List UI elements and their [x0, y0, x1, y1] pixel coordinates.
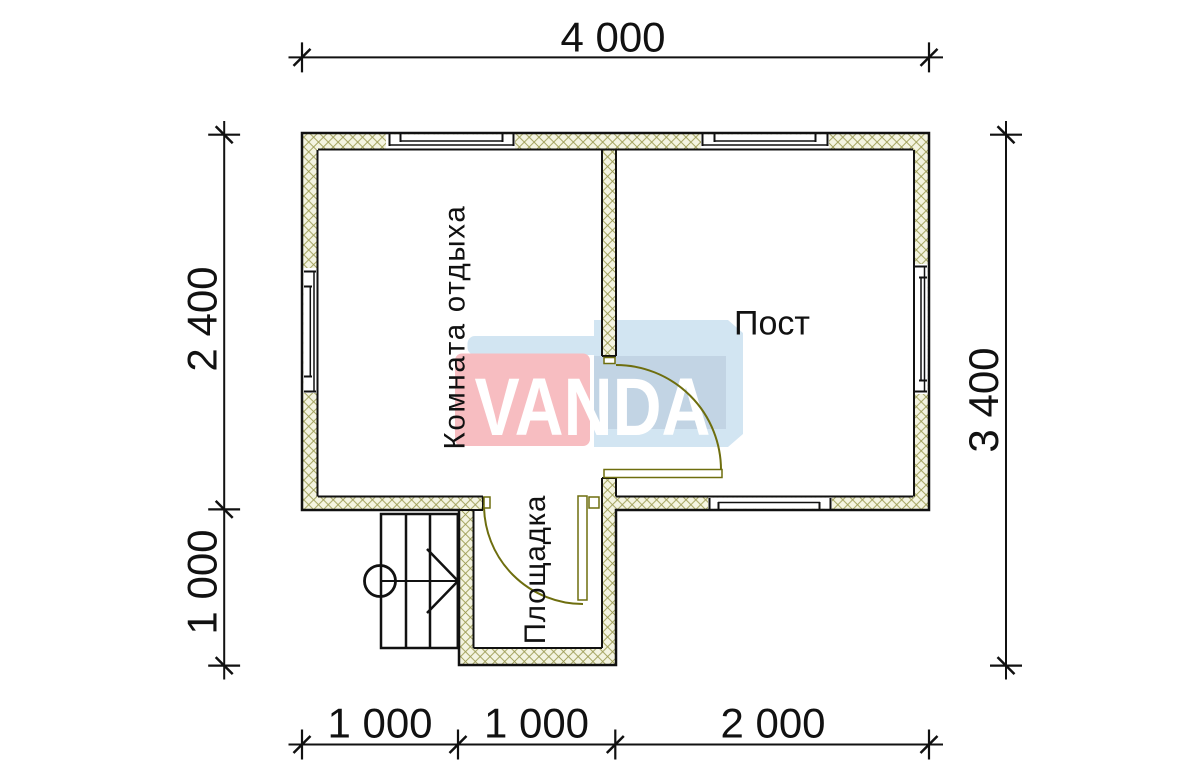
svg-text:1 000: 1 000 [178, 529, 225, 634]
svg-text:2 400: 2 400 [178, 266, 225, 371]
svg-text:1 000: 1 000 [327, 700, 432, 747]
svg-text:4 000: 4 000 [560, 14, 665, 61]
svg-text:2 000: 2 000 [720, 700, 825, 747]
svg-text:Площадка: Площадка [519, 495, 552, 644]
svg-text:1 000: 1 000 [484, 700, 589, 747]
svg-text:VANDA: VANDA [475, 362, 711, 453]
svg-text:3 400: 3 400 [960, 347, 1007, 452]
svg-text:Комната отдыха: Комната отдыха [438, 204, 471, 449]
svg-text:Пост: Пост [734, 305, 810, 343]
